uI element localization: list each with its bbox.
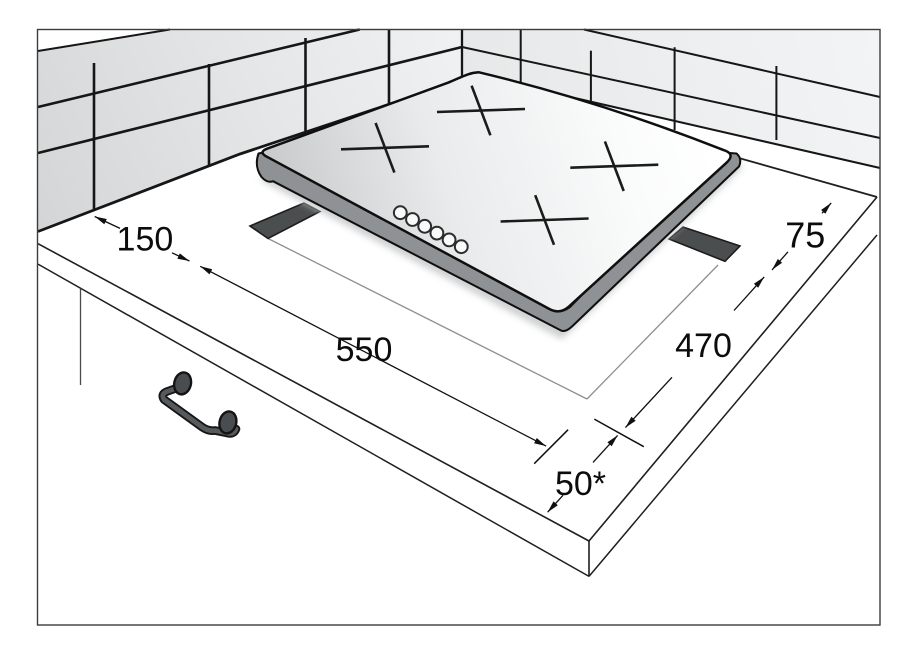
svg-text:550: 550 (336, 331, 393, 369)
svg-text:50*: 50* (555, 465, 606, 503)
svg-text:470: 470 (675, 327, 732, 365)
svg-text:75: 75 (785, 215, 825, 256)
svg-text:150: 150 (117, 220, 174, 258)
